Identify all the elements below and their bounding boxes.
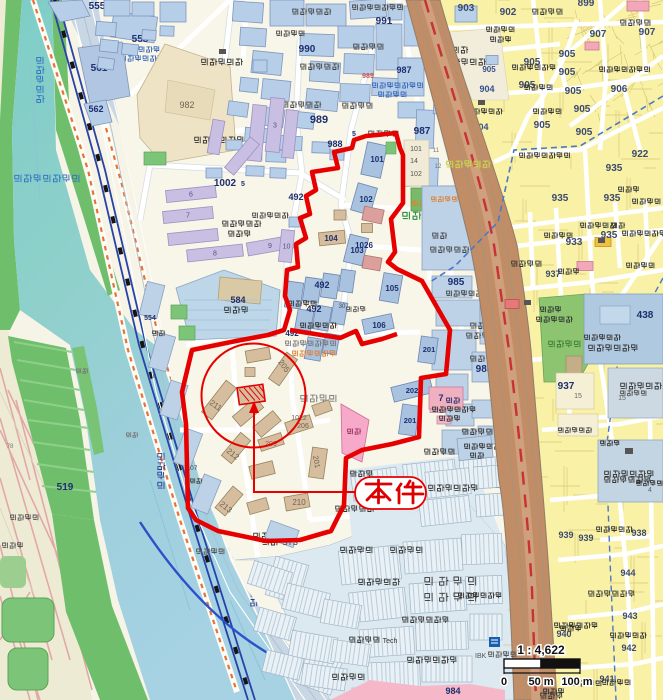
svg-text:10: 10 [283,244,291,251]
svg-text:982: 982 [179,100,194,110]
svg-text:989: 989 [362,73,374,80]
svg-text:991: 991 [376,16,393,27]
svg-text:105: 105 [385,284,399,293]
svg-text:6: 6 [189,192,193,199]
svg-text:562: 562 [88,104,103,114]
svg-text:905: 905 [565,86,582,97]
svg-text:904: 904 [479,84,494,94]
svg-text:905: 905 [576,127,593,138]
svg-text:905: 905 [559,67,576,78]
svg-text:944: 944 [620,568,635,578]
svg-text:519: 519 [57,482,74,493]
svg-text:102: 102 [410,171,422,178]
svg-text:555: 555 [89,1,106,12]
svg-text:0: 0 [501,676,507,688]
svg-text:933: 933 [566,237,583,248]
svg-text:206: 206 [297,423,309,430]
svg-text:906: 906 [611,84,628,95]
svg-text:9: 9 [268,243,272,250]
svg-text:1026: 1026 [355,241,373,250]
svg-text:990: 990 [299,44,316,55]
svg-text:7: 7 [438,393,443,403]
svg-text:938: 938 [631,528,646,538]
svg-text:907: 907 [590,29,607,40]
svg-text:201: 201 [404,416,417,425]
svg-text:50 m: 50 m [528,676,553,688]
svg-text:492: 492 [288,192,303,202]
svg-text:12: 12 [435,164,442,170]
svg-text:905: 905 [534,120,551,131]
svg-text:943: 943 [622,611,637,621]
svg-text:935: 935 [604,193,621,204]
svg-text:106: 106 [372,321,386,330]
svg-text:202: 202 [406,386,419,395]
svg-text:905: 905 [559,49,576,60]
svg-text:584: 584 [230,295,245,305]
svg-text:989: 989 [310,114,328,126]
svg-text:902: 902 [500,7,517,18]
svg-text:985: 985 [448,277,465,288]
svg-text:5: 5 [352,131,356,138]
svg-text:101: 101 [370,155,384,164]
svg-text:30: 30 [339,304,346,310]
svg-text:8: 8 [213,251,217,258]
svg-text:988: 988 [327,139,342,149]
svg-text:935: 935 [601,230,618,241]
svg-text:937: 937 [558,381,575,392]
svg-text:922: 922 [632,149,649,160]
svg-text:201: 201 [423,345,436,354]
svg-text:100 m: 100 m [561,676,592,688]
svg-text:14: 14 [410,158,418,165]
svg-text:1002: 1002 [214,178,237,189]
svg-text:7: 7 [186,213,190,220]
svg-text:935: 935 [552,193,569,204]
svg-text:899: 899 [578,0,595,9]
svg-text:1 : 4,622: 1 : 4,622 [517,643,565,657]
svg-text:438: 438 [637,310,654,321]
svg-text:942: 942 [621,643,636,653]
svg-text:102: 102 [359,195,373,204]
svg-text:905: 905 [574,104,591,115]
svg-text:903: 903 [458,3,475,14]
svg-text:939: 939 [558,530,573,540]
svg-text:907: 907 [639,27,656,38]
svg-text:987: 987 [396,65,411,75]
svg-text:Tech: Tech [383,638,398,645]
svg-text:984: 984 [445,686,460,696]
svg-text:IBK: IBK [475,653,487,660]
svg-text:554: 554 [144,315,156,322]
svg-text:101: 101 [410,146,422,153]
svg-text:11: 11 [433,148,440,154]
svg-text:4: 4 [648,487,652,494]
svg-text:905: 905 [482,65,496,74]
svg-text:935: 935 [606,163,623,174]
svg-text:210: 210 [292,498,306,507]
svg-text:492: 492 [314,280,329,290]
svg-text:15: 15 [574,393,582,400]
svg-text:3: 3 [273,123,277,130]
svg-text:15: 15 [618,395,626,402]
svg-text:987: 987 [414,126,431,137]
svg-text:939: 939 [578,533,593,543]
svg-text:78: 78 [7,444,14,450]
svg-text:5: 5 [241,181,245,188]
svg-text:104: 104 [324,234,338,243]
